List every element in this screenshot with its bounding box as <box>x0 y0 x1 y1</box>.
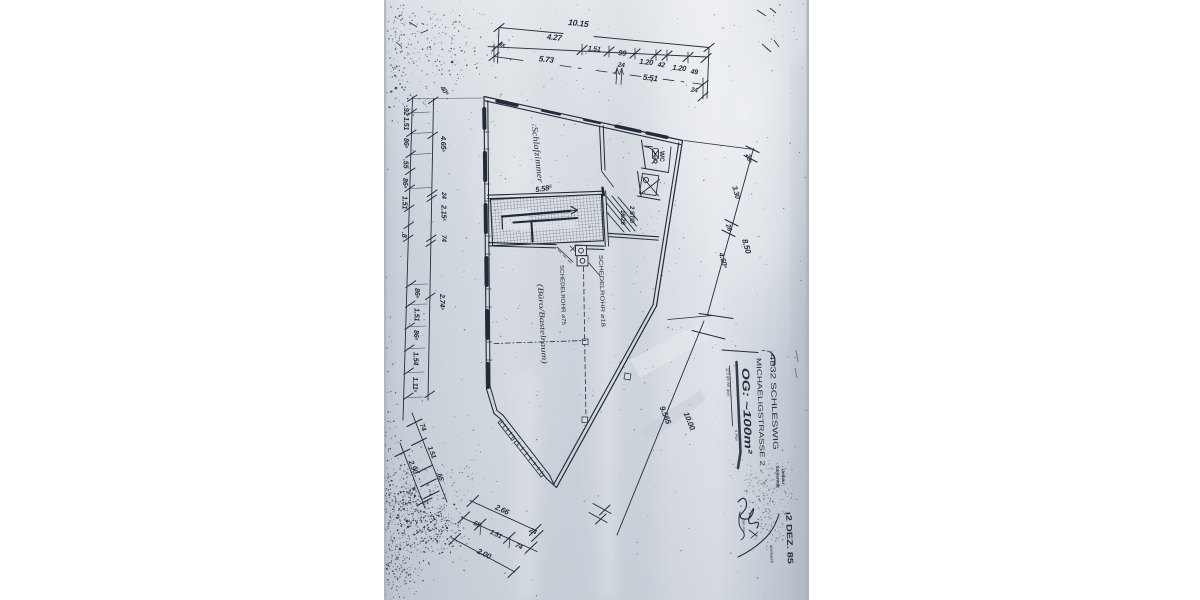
svg-text:4.27: 4.27 <box>545 32 562 43</box>
svg-text:4.65⁵: 4.65⁵ <box>439 135 448 152</box>
svg-text:86⁵: 86⁵ <box>401 178 410 189</box>
svg-text:.92: .92 <box>402 106 411 116</box>
svg-text:2 STG: 2 STG <box>628 205 635 223</box>
svg-text:1.11⁵: 1.11⁵ <box>411 377 420 393</box>
svg-text:86⁵: 86⁵ <box>413 288 422 299</box>
svg-text:2.15⁵: 2.15⁵ <box>440 204 449 221</box>
svg-text:42: 42 <box>656 62 665 70</box>
svg-text:49: 49 <box>689 69 698 77</box>
svg-text:24: 24 <box>440 191 447 199</box>
svg-text:WC: WC <box>658 151 665 162</box>
svg-text:1.20: 1.20 <box>672 63 688 74</box>
svg-text:5.51: 5.51 <box>642 73 659 84</box>
svg-text:24: 24 <box>689 86 698 94</box>
svg-text:1.51: 1.51 <box>413 308 422 321</box>
svg-text:anerkannt: anerkannt <box>769 545 775 564</box>
svg-text:1.51: 1.51 <box>587 45 601 53</box>
svg-text:1.20: 1.20 <box>639 57 655 68</box>
svg-text:5.73: 5.73 <box>538 54 555 65</box>
svg-text:lt. Plan: lt. Plan <box>734 430 738 441</box>
svg-text:Dipl.-Ing.: Dipl.-Ing. <box>742 519 746 533</box>
svg-text:1.51: 1.51 <box>401 196 410 209</box>
svg-text:1.51: 1.51 <box>402 117 411 130</box>
svg-text:2.74⁵: 2.74⁵ <box>438 293 447 310</box>
svg-text:.8: .8 <box>400 232 409 238</box>
svg-text:74: 74 <box>440 235 447 242</box>
svg-text:86⁵: 86⁵ <box>402 138 411 149</box>
svg-text:1.54: 1.54 <box>412 352 421 365</box>
svg-text:24: 24 <box>616 62 625 70</box>
svg-text:ı̖2 DEZ. 85: ı̖2 DEZ. 85 <box>784 512 795 565</box>
svg-text:86⁵: 86⁵ <box>412 330 421 341</box>
svg-text:16/26: 16/26 <box>619 210 626 225</box>
svg-text:.55: .55 <box>402 159 411 170</box>
